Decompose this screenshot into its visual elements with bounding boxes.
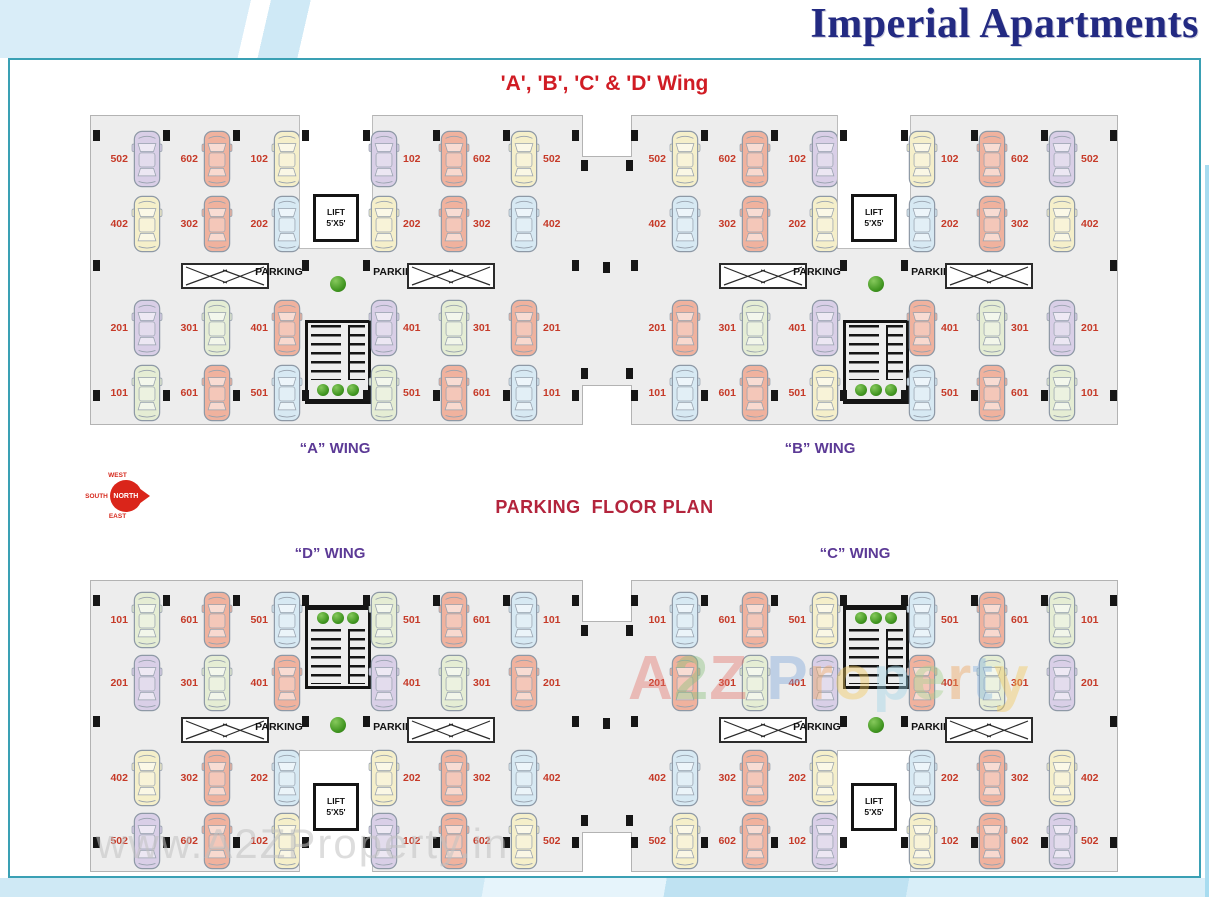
spot-number: 502 bbox=[1078, 153, 1111, 165]
car-icon bbox=[368, 591, 400, 649]
parking-spot: 501 bbox=[368, 589, 438, 650]
car-icon bbox=[201, 364, 233, 422]
lift-label: LIFT bbox=[865, 796, 883, 807]
spot-number: 502 bbox=[636, 835, 669, 847]
column-tick bbox=[93, 595, 100, 606]
parking-spot: 301 bbox=[438, 297, 508, 359]
parking-row: 401301201 bbox=[367, 297, 579, 359]
spot-number: 301 bbox=[706, 322, 739, 334]
parking-row: 501601101 bbox=[905, 589, 1117, 650]
parking-spot: 302 bbox=[168, 193, 238, 255]
column-tick bbox=[1041, 595, 1048, 606]
spot-number: 502 bbox=[98, 153, 131, 165]
column-tick bbox=[363, 837, 370, 848]
column-tick bbox=[233, 595, 240, 606]
tree-icon bbox=[332, 612, 344, 624]
car-icon bbox=[131, 749, 163, 807]
car-icon bbox=[906, 195, 938, 253]
car-icon bbox=[739, 364, 771, 422]
car-icon bbox=[508, 364, 540, 422]
car-icon bbox=[201, 812, 233, 870]
header-stripe-decoration bbox=[0, 0, 385, 58]
column-tick bbox=[363, 260, 370, 271]
parking-spot: 102 bbox=[238, 810, 308, 871]
column-tick bbox=[433, 130, 440, 141]
car-icon bbox=[368, 364, 400, 422]
spot-number: 302 bbox=[706, 218, 739, 230]
column-tick bbox=[163, 595, 170, 606]
lift-label: LIFT bbox=[327, 796, 345, 807]
spot-number: 401 bbox=[776, 677, 809, 689]
parking-spot: 601 bbox=[706, 362, 776, 424]
parking-spot: 102 bbox=[776, 810, 846, 871]
car-icon bbox=[906, 591, 938, 649]
column-tick bbox=[1110, 716, 1117, 727]
building-strip-top: 502602102402302202201301401101601501PARK… bbox=[90, 115, 1118, 425]
lift-lobby: LIFT5'X5' bbox=[299, 750, 373, 872]
central-gap bbox=[579, 581, 635, 871]
parking-spot: 401 bbox=[906, 652, 976, 713]
spot-number: 102 bbox=[400, 835, 433, 847]
column-tick bbox=[626, 160, 633, 171]
car-icon bbox=[906, 364, 938, 422]
parking-spot: 501 bbox=[368, 362, 438, 424]
car-icon bbox=[201, 130, 233, 188]
car-icon bbox=[368, 749, 400, 807]
spot-number: 401 bbox=[938, 322, 971, 334]
car-icon bbox=[368, 130, 400, 188]
spot-number: 402 bbox=[98, 772, 131, 784]
parking-row: 402302202 bbox=[635, 193, 847, 255]
column-tick bbox=[93, 716, 100, 727]
car-icon bbox=[976, 195, 1008, 253]
car-icon bbox=[508, 130, 540, 188]
column-tick bbox=[971, 595, 978, 606]
parking-row: 501601101 bbox=[367, 589, 579, 650]
parking-spot: 202 bbox=[776, 747, 846, 808]
stair-treads bbox=[311, 629, 365, 684]
building-notch bbox=[582, 832, 632, 872]
column-tick bbox=[1110, 130, 1117, 141]
parking-spot: 102 bbox=[368, 810, 438, 871]
parking-spot: 501 bbox=[906, 589, 976, 650]
lift-box: LIFT5'X5' bbox=[851, 194, 897, 242]
building-notch bbox=[582, 115, 632, 157]
parking-row: 501601101 bbox=[905, 362, 1117, 424]
parking-spot: 502 bbox=[636, 810, 706, 871]
spot-number: 602 bbox=[1008, 153, 1041, 165]
spot-number: 501 bbox=[938, 614, 971, 626]
parking-row: 502602102 bbox=[635, 810, 847, 871]
column-tick bbox=[233, 130, 240, 141]
spot-number: 201 bbox=[636, 322, 669, 334]
column-tick bbox=[233, 837, 240, 848]
parking-spot: 202 bbox=[368, 747, 438, 808]
column-tick bbox=[603, 262, 610, 273]
staircase bbox=[843, 605, 909, 689]
tree-icon bbox=[885, 612, 897, 624]
column-tick bbox=[971, 390, 978, 401]
column-tick bbox=[581, 160, 588, 171]
parking-text: PARKING bbox=[789, 266, 845, 278]
parking-spot: 502 bbox=[636, 128, 706, 190]
car-icon bbox=[131, 364, 163, 422]
spot-number: 202 bbox=[238, 218, 271, 230]
car-icon bbox=[809, 364, 841, 422]
parking-spot: 201 bbox=[636, 652, 706, 713]
car-icon bbox=[131, 130, 163, 188]
parking-spot: 201 bbox=[1046, 297, 1116, 359]
column-tick bbox=[581, 368, 588, 379]
spot-number: 201 bbox=[98, 677, 131, 689]
car-icon bbox=[508, 749, 540, 807]
spot-number: 402 bbox=[540, 772, 573, 784]
parking-spot: 302 bbox=[168, 747, 238, 808]
parking-spot: 401 bbox=[776, 297, 846, 359]
drive-aisle bbox=[367, 258, 579, 294]
parking-row: 502602102 bbox=[97, 810, 309, 871]
parking-spot: 302 bbox=[976, 193, 1046, 255]
column-tick bbox=[93, 390, 100, 401]
spot-number: 302 bbox=[168, 772, 201, 784]
lift-size-label: 5'X5' bbox=[864, 218, 883, 229]
column-tick bbox=[701, 595, 708, 606]
column-tick bbox=[302, 837, 309, 848]
car-icon bbox=[906, 654, 938, 712]
parking-spot: 401 bbox=[368, 297, 438, 359]
parking-spot: 301 bbox=[976, 297, 1046, 359]
parking-row: 101601501 bbox=[97, 362, 309, 424]
column-tick bbox=[302, 390, 309, 401]
service-core: PARKINGPARKINGLIFT5'X5' bbox=[847, 581, 905, 871]
parking-spot: 601 bbox=[438, 589, 508, 650]
car-icon bbox=[1046, 364, 1078, 422]
parking-row: 402302202 bbox=[635, 747, 847, 808]
parking-spot: 102 bbox=[776, 128, 846, 190]
spot-number: 601 bbox=[168, 387, 201, 399]
spot-number: 301 bbox=[1008, 322, 1041, 334]
spot-number: 601 bbox=[706, 387, 739, 399]
car-icon bbox=[906, 130, 938, 188]
car-icon bbox=[809, 591, 841, 649]
wing-section: 102602502202302402401301201501601101 bbox=[367, 116, 579, 424]
aisle-tree-icon bbox=[330, 276, 346, 292]
column-tick bbox=[572, 837, 579, 848]
parking-spot: 601 bbox=[168, 362, 238, 424]
parking-spot: 501 bbox=[238, 589, 308, 650]
column-tick bbox=[581, 625, 588, 636]
lift-box: LIFT5'X5' bbox=[313, 194, 359, 242]
wing-label-d: “D” WING bbox=[220, 545, 440, 562]
car-icon bbox=[1046, 812, 1078, 870]
column-tick bbox=[302, 716, 309, 727]
parking-row: 201301401 bbox=[635, 297, 847, 359]
spot-number: 101 bbox=[1078, 614, 1111, 626]
car-icon bbox=[201, 591, 233, 649]
tree-icon bbox=[317, 612, 329, 624]
spot-number: 602 bbox=[168, 835, 201, 847]
parking-spot: 602 bbox=[706, 128, 776, 190]
parking-row: 102602502 bbox=[367, 128, 579, 190]
spot-number: 201 bbox=[1078, 322, 1111, 334]
spot-number: 101 bbox=[540, 387, 573, 399]
compass-west-label: WEST bbox=[60, 472, 175, 479]
car-icon bbox=[201, 299, 233, 357]
parking-row: 402302202 bbox=[97, 193, 309, 255]
staircase bbox=[843, 320, 909, 404]
spot-number: 401 bbox=[238, 322, 271, 334]
car-icon bbox=[508, 591, 540, 649]
parking-row: 101601501 bbox=[635, 589, 847, 650]
planter bbox=[308, 610, 368, 627]
column-tick bbox=[840, 716, 847, 727]
spot-number: 301 bbox=[470, 322, 503, 334]
spot-number: 601 bbox=[168, 614, 201, 626]
spot-number: 502 bbox=[540, 153, 573, 165]
column-tick bbox=[840, 260, 847, 271]
parking-spot: 401 bbox=[238, 652, 308, 713]
column-tick bbox=[840, 595, 847, 606]
parking-spot: 402 bbox=[508, 193, 578, 255]
car-icon bbox=[368, 195, 400, 253]
spot-number: 601 bbox=[1008, 614, 1041, 626]
parking-spot: 101 bbox=[1046, 362, 1116, 424]
parking-spot: 302 bbox=[438, 747, 508, 808]
spot-number: 101 bbox=[636, 614, 669, 626]
spot-number: 101 bbox=[98, 614, 131, 626]
parking-spot: 602 bbox=[438, 810, 508, 871]
column-tick bbox=[1110, 260, 1117, 271]
spot-number: 501 bbox=[400, 387, 433, 399]
column-tick bbox=[901, 390, 908, 401]
spot-number: 501 bbox=[938, 387, 971, 399]
lift-label: LIFT bbox=[865, 207, 883, 218]
ramp-marker bbox=[945, 717, 1033, 743]
parking-spot: 301 bbox=[706, 652, 776, 713]
spot-number: 302 bbox=[470, 772, 503, 784]
column-tick bbox=[363, 130, 370, 141]
parking-spot: 401 bbox=[368, 652, 438, 713]
column-tick bbox=[631, 837, 638, 848]
car-icon bbox=[508, 654, 540, 712]
spot-number: 302 bbox=[706, 772, 739, 784]
wing-label-b: “B” WING bbox=[710, 440, 930, 457]
tree-icon bbox=[317, 384, 329, 396]
spot-number: 501 bbox=[400, 614, 433, 626]
parking-spot: 301 bbox=[706, 297, 776, 359]
spot-number: 202 bbox=[400, 218, 433, 230]
column-tick bbox=[603, 718, 610, 729]
car-icon bbox=[669, 130, 701, 188]
column-tick bbox=[302, 595, 309, 606]
aisle-tree-icon bbox=[868, 717, 884, 733]
car-icon bbox=[201, 654, 233, 712]
spot-number: 401 bbox=[238, 677, 271, 689]
spot-number: 601 bbox=[706, 614, 739, 626]
spot-number: 602 bbox=[706, 835, 739, 847]
central-gap bbox=[579, 116, 635, 424]
column-tick bbox=[572, 716, 579, 727]
spot-number: 502 bbox=[636, 153, 669, 165]
parking-row: 502602102 bbox=[97, 128, 309, 190]
parking-row: 502602102 bbox=[635, 128, 847, 190]
column-tick bbox=[503, 595, 510, 606]
parking-spot: 302 bbox=[976, 747, 1046, 808]
car-icon bbox=[809, 299, 841, 357]
column-tick bbox=[93, 260, 100, 271]
spot-number: 102 bbox=[238, 153, 271, 165]
spot-number: 402 bbox=[1078, 772, 1111, 784]
car-icon bbox=[368, 654, 400, 712]
parking-spot: 301 bbox=[438, 652, 508, 713]
parking-spot: 402 bbox=[1046, 747, 1116, 808]
spot-number: 101 bbox=[636, 387, 669, 399]
ramp-marker bbox=[407, 717, 495, 743]
column-tick bbox=[572, 390, 579, 401]
planter bbox=[846, 610, 906, 627]
parking-spot: 101 bbox=[98, 362, 168, 424]
parking-spot: 402 bbox=[636, 747, 706, 808]
parking-spot: 502 bbox=[508, 128, 578, 190]
parking-spot: 101 bbox=[636, 589, 706, 650]
parking-spot: 402 bbox=[98, 747, 168, 808]
wing-label-a: “A” WING bbox=[225, 440, 445, 457]
spot-number: 202 bbox=[938, 218, 971, 230]
parking-spot: 101 bbox=[636, 362, 706, 424]
spot-number: 301 bbox=[706, 677, 739, 689]
car-icon bbox=[131, 812, 163, 870]
aisle-tree-icon bbox=[868, 276, 884, 292]
car-icon bbox=[669, 364, 701, 422]
tree-icon bbox=[885, 384, 897, 396]
spot-number: 102 bbox=[776, 835, 809, 847]
spot-number: 401 bbox=[938, 677, 971, 689]
spot-number: 202 bbox=[776, 772, 809, 784]
parking-spot: 302 bbox=[706, 747, 776, 808]
parking-spot: 502 bbox=[98, 810, 168, 871]
parking-row: 402302202 bbox=[97, 747, 309, 808]
car-icon bbox=[508, 299, 540, 357]
car-icon bbox=[438, 299, 470, 357]
spot-number: 301 bbox=[168, 677, 201, 689]
car-icon bbox=[906, 749, 938, 807]
parking-row: 102602502 bbox=[905, 128, 1117, 190]
column-tick bbox=[901, 130, 908, 141]
spot-number: 601 bbox=[470, 387, 503, 399]
car-icon bbox=[1046, 591, 1078, 649]
parking-spot: 202 bbox=[906, 747, 976, 808]
parking-spot: 201 bbox=[508, 297, 578, 359]
service-core: PARKINGPARKINGLIFT5'X5' bbox=[847, 116, 905, 424]
spot-number: 302 bbox=[1008, 772, 1041, 784]
spot-number: 602 bbox=[470, 153, 503, 165]
column-tick bbox=[163, 837, 170, 848]
parking-spot: 102 bbox=[906, 128, 976, 190]
drive-aisle bbox=[905, 258, 1117, 294]
parking-row: 201301401 bbox=[97, 652, 309, 713]
column-tick bbox=[631, 260, 638, 271]
car-icon bbox=[669, 749, 701, 807]
car-icon bbox=[976, 299, 1008, 357]
car-icon bbox=[201, 749, 233, 807]
parking-spot: 502 bbox=[1046, 810, 1116, 871]
parking-spot: 602 bbox=[976, 128, 1046, 190]
column-tick bbox=[971, 130, 978, 141]
parking-spot: 202 bbox=[776, 193, 846, 255]
parking-spot: 602 bbox=[168, 128, 238, 190]
lift-lobby: LIFT5'X5' bbox=[837, 750, 911, 872]
parking-spot: 302 bbox=[706, 193, 776, 255]
car-icon bbox=[438, 812, 470, 870]
parking-row: 401301201 bbox=[367, 652, 579, 713]
spot-number: 501 bbox=[776, 387, 809, 399]
page-title: Imperial Apartments bbox=[810, 0, 1199, 48]
building-strip-bottom: 101601501201301401402302202502602102PARK… bbox=[90, 580, 1118, 872]
car-icon bbox=[739, 591, 771, 649]
car-icon bbox=[669, 299, 701, 357]
parking-spot: 202 bbox=[906, 193, 976, 255]
parking-spot: 502 bbox=[508, 810, 578, 871]
parking-spot: 601 bbox=[976, 362, 1046, 424]
car-icon bbox=[368, 299, 400, 357]
column-tick bbox=[626, 368, 633, 379]
car-icon bbox=[739, 812, 771, 870]
column-tick bbox=[363, 390, 370, 401]
spot-number: 201 bbox=[636, 677, 669, 689]
column-tick bbox=[631, 390, 638, 401]
car-icon bbox=[131, 591, 163, 649]
parking-spot: 201 bbox=[636, 297, 706, 359]
parking-spot: 201 bbox=[508, 652, 578, 713]
column-tick bbox=[363, 595, 370, 606]
parking-row: 202302402 bbox=[905, 747, 1117, 808]
tree-icon bbox=[870, 612, 882, 624]
parking-row: 201301401 bbox=[635, 652, 847, 713]
parking-spot: 602 bbox=[976, 810, 1046, 871]
column-tick bbox=[302, 130, 309, 141]
car-icon bbox=[1046, 749, 1078, 807]
parking-row: 202302402 bbox=[367, 747, 579, 808]
tree-icon bbox=[855, 384, 867, 396]
spot-number: 602 bbox=[168, 153, 201, 165]
parking-row: 101601501 bbox=[635, 362, 847, 424]
parking-row: 102602502 bbox=[905, 810, 1117, 871]
parking-row: 101601501 bbox=[97, 589, 309, 650]
column-tick bbox=[840, 837, 847, 848]
lift-lobby: LIFT5'X5' bbox=[837, 115, 911, 249]
car-icon bbox=[739, 130, 771, 188]
car-icon bbox=[976, 749, 1008, 807]
car-icon bbox=[131, 195, 163, 253]
column-tick bbox=[572, 130, 579, 141]
spot-number: 401 bbox=[400, 677, 433, 689]
column-tick bbox=[631, 595, 638, 606]
spot-number: 202 bbox=[776, 218, 809, 230]
parking-spot: 601 bbox=[438, 362, 508, 424]
parking-row: 401301201 bbox=[905, 297, 1117, 359]
car-icon bbox=[508, 195, 540, 253]
car-icon bbox=[739, 654, 771, 712]
car-icon bbox=[1046, 299, 1078, 357]
parking-spot: 102 bbox=[368, 128, 438, 190]
car-icon bbox=[976, 364, 1008, 422]
drive-aisle bbox=[367, 715, 579, 745]
parking-spot: 402 bbox=[1046, 193, 1116, 255]
car-icon bbox=[809, 654, 841, 712]
parking-spot: 202 bbox=[368, 193, 438, 255]
column-tick bbox=[626, 625, 633, 636]
column-tick bbox=[233, 390, 240, 401]
